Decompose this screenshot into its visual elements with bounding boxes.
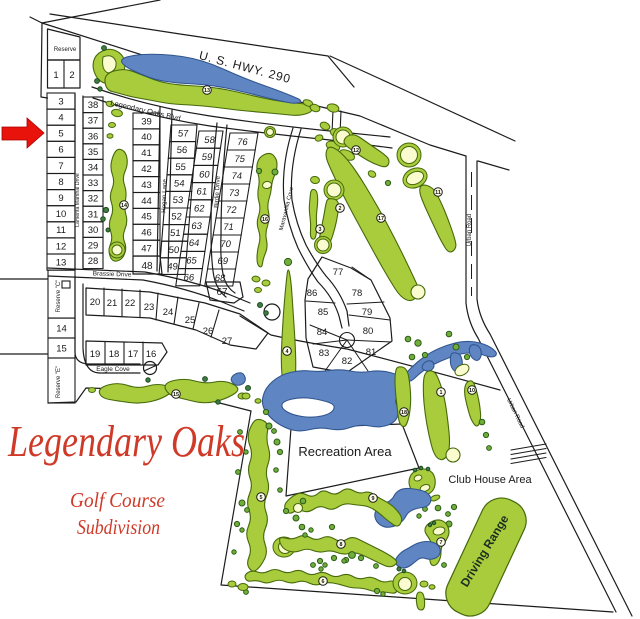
- svg-text:23: 23: [144, 302, 155, 313]
- svg-text:47: 47: [141, 243, 152, 254]
- svg-text:25: 25: [185, 315, 196, 326]
- svg-text:12: 12: [353, 148, 359, 154]
- svg-text:37: 37: [88, 116, 99, 127]
- svg-text:Recreation Area: Recreation Area: [298, 444, 392, 459]
- svg-text:Eagle Cove: Eagle Cove: [96, 366, 130, 373]
- svg-text:62: 62: [193, 204, 205, 215]
- svg-text:73: 73: [228, 188, 240, 199]
- svg-text:12: 12: [56, 241, 67, 252]
- svg-text:29: 29: [88, 241, 99, 252]
- svg-text:Legendary Oaks: Legendary Oaks: [7, 417, 245, 466]
- svg-text:8: 8: [340, 542, 343, 548]
- svg-text:65: 65: [185, 255, 197, 266]
- svg-text:32: 32: [88, 194, 99, 205]
- svg-text:52: 52: [171, 212, 182, 223]
- svg-text:85: 85: [318, 307, 329, 318]
- svg-text:1: 1: [53, 70, 58, 81]
- svg-text:75: 75: [233, 154, 245, 165]
- svg-text:58: 58: [203, 135, 215, 146]
- svg-text:Subdivision: Subdivision: [77, 515, 160, 539]
- svg-text:22: 22: [125, 298, 136, 309]
- svg-text:Reserve: Reserve: [54, 47, 77, 53]
- svg-text:5: 5: [260, 495, 263, 501]
- svg-text:61: 61: [196, 187, 208, 198]
- svg-text:14: 14: [56, 323, 67, 334]
- svg-text:Hogan Lane: Hogan Lane: [160, 178, 168, 212]
- svg-text:26: 26: [203, 326, 214, 337]
- svg-text:82: 82: [342, 356, 353, 367]
- svg-text:Lamenta Marshal Drive: Lamenta Marshal Drive: [75, 173, 81, 227]
- svg-text:28: 28: [88, 256, 99, 267]
- svg-text:7: 7: [58, 161, 63, 172]
- svg-text:59: 59: [201, 152, 213, 163]
- svg-text:80: 80: [363, 326, 374, 337]
- svg-text:48: 48: [141, 261, 153, 272]
- svg-text:53: 53: [172, 195, 183, 206]
- svg-text:13: 13: [56, 257, 67, 268]
- svg-text:54: 54: [174, 178, 185, 189]
- svg-text:86: 86: [307, 288, 318, 299]
- svg-text:4: 4: [286, 349, 289, 355]
- svg-text:21: 21: [107, 298, 118, 309]
- svg-text:Urban Road: Urban Road: [467, 214, 473, 246]
- svg-text:40: 40: [141, 132, 152, 143]
- svg-text:10: 10: [56, 209, 67, 220]
- svg-text:13: 13: [204, 88, 210, 94]
- svg-text:42: 42: [141, 164, 152, 175]
- svg-text:7: 7: [440, 540, 443, 546]
- svg-text:3: 3: [319, 227, 322, 233]
- svg-text:24: 24: [163, 307, 174, 318]
- svg-text:2: 2: [69, 70, 74, 81]
- svg-text:63: 63: [191, 221, 203, 232]
- svg-text:27: 27: [222, 336, 233, 347]
- svg-text:9: 9: [58, 193, 63, 204]
- svg-text:Club House Area: Club House Area: [448, 474, 532, 486]
- svg-text:70: 70: [219, 239, 231, 250]
- svg-text:19: 19: [90, 349, 101, 360]
- svg-text:51: 51: [170, 228, 181, 239]
- svg-text:31: 31: [88, 209, 99, 220]
- svg-text:8: 8: [58, 177, 63, 188]
- svg-text:79: 79: [362, 307, 373, 318]
- svg-text:17: 17: [128, 349, 139, 360]
- svg-text:34: 34: [88, 163, 99, 174]
- svg-text:67: 67: [216, 287, 228, 298]
- svg-text:18: 18: [109, 349, 120, 360]
- svg-text:Golf Course: Golf Course: [70, 488, 165, 512]
- svg-text:39: 39: [141, 116, 152, 127]
- svg-text:36: 36: [88, 131, 99, 142]
- svg-text:16: 16: [146, 349, 157, 360]
- svg-text:30: 30: [88, 225, 99, 236]
- svg-text:33: 33: [88, 178, 99, 189]
- svg-text:77: 77: [333, 267, 344, 278]
- svg-text:56: 56: [176, 145, 187, 156]
- svg-text:4: 4: [58, 112, 63, 123]
- svg-text:18: 18: [401, 410, 407, 416]
- svg-text:83: 83: [319, 348, 330, 359]
- svg-text:50: 50: [168, 245, 179, 256]
- svg-text:15: 15: [56, 343, 67, 354]
- svg-text:15: 15: [173, 392, 179, 398]
- svg-text:2: 2: [339, 206, 342, 212]
- svg-text:20: 20: [90, 297, 101, 308]
- svg-text:69: 69: [217, 256, 229, 267]
- svg-text:Reserve "C": Reserve "C": [56, 280, 62, 313]
- svg-text:72: 72: [225, 205, 237, 216]
- svg-text:81: 81: [366, 347, 377, 358]
- svg-text:76: 76: [236, 137, 248, 148]
- svg-text:49: 49: [167, 261, 178, 272]
- svg-text:46: 46: [141, 228, 152, 239]
- svg-text:14: 14: [121, 203, 127, 209]
- svg-text:41: 41: [141, 148, 152, 159]
- svg-text:6: 6: [58, 145, 63, 156]
- svg-text:71: 71: [222, 222, 234, 233]
- svg-text:78: 78: [352, 288, 363, 299]
- svg-text:16: 16: [262, 217, 268, 223]
- svg-text:Brassie Drive: Brassie Drive: [93, 270, 132, 278]
- svg-text:1: 1: [440, 390, 443, 396]
- svg-text:11: 11: [56, 225, 66, 236]
- svg-text:6: 6: [322, 579, 325, 585]
- svg-text:35: 35: [88, 147, 99, 158]
- svg-text:38: 38: [88, 100, 99, 111]
- svg-text:Reserve "E": Reserve "E": [56, 366, 62, 398]
- svg-text:43: 43: [141, 180, 152, 191]
- svg-text:60: 60: [198, 169, 210, 180]
- svg-text:44: 44: [141, 196, 152, 207]
- svg-text:5: 5: [58, 129, 63, 140]
- svg-text:17: 17: [378, 216, 384, 222]
- svg-text:84: 84: [317, 327, 328, 338]
- svg-text:3: 3: [58, 96, 63, 107]
- svg-text:11: 11: [435, 190, 441, 196]
- svg-text:9: 9: [372, 496, 375, 502]
- svg-text:55: 55: [175, 162, 186, 173]
- svg-text:10: 10: [469, 388, 475, 394]
- svg-text:57: 57: [178, 129, 189, 140]
- svg-text:66: 66: [183, 273, 195, 284]
- svg-text:45: 45: [141, 212, 152, 223]
